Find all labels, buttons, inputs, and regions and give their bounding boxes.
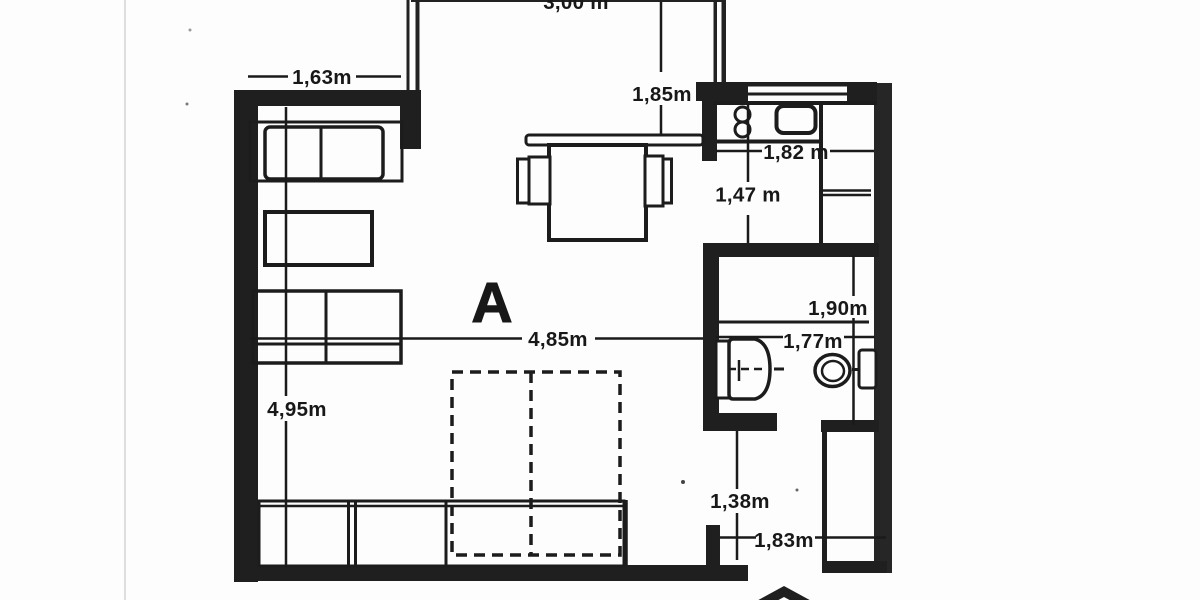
svg-text:1,77m: 1,77m <box>783 330 843 353</box>
svg-text:1,85m: 1,85m <box>632 83 692 106</box>
svg-text:1,83m: 1,83m <box>754 529 814 552</box>
svg-text:4,85m: 4,85m <box>528 328 588 351</box>
svg-text:A: A <box>471 271 512 335</box>
svg-text:4,95m: 4,95m <box>267 398 327 421</box>
svg-text:1,38m: 1,38m <box>710 490 770 513</box>
svg-text:1,90m: 1,90m <box>808 297 868 320</box>
svg-text:3,00 m: 3,00 m <box>543 0 609 14</box>
svg-text:1,47 m: 1,47 m <box>715 184 781 207</box>
svg-text:1,82 m: 1,82 m <box>763 141 829 164</box>
svg-text:1,63m: 1,63m <box>292 66 352 89</box>
